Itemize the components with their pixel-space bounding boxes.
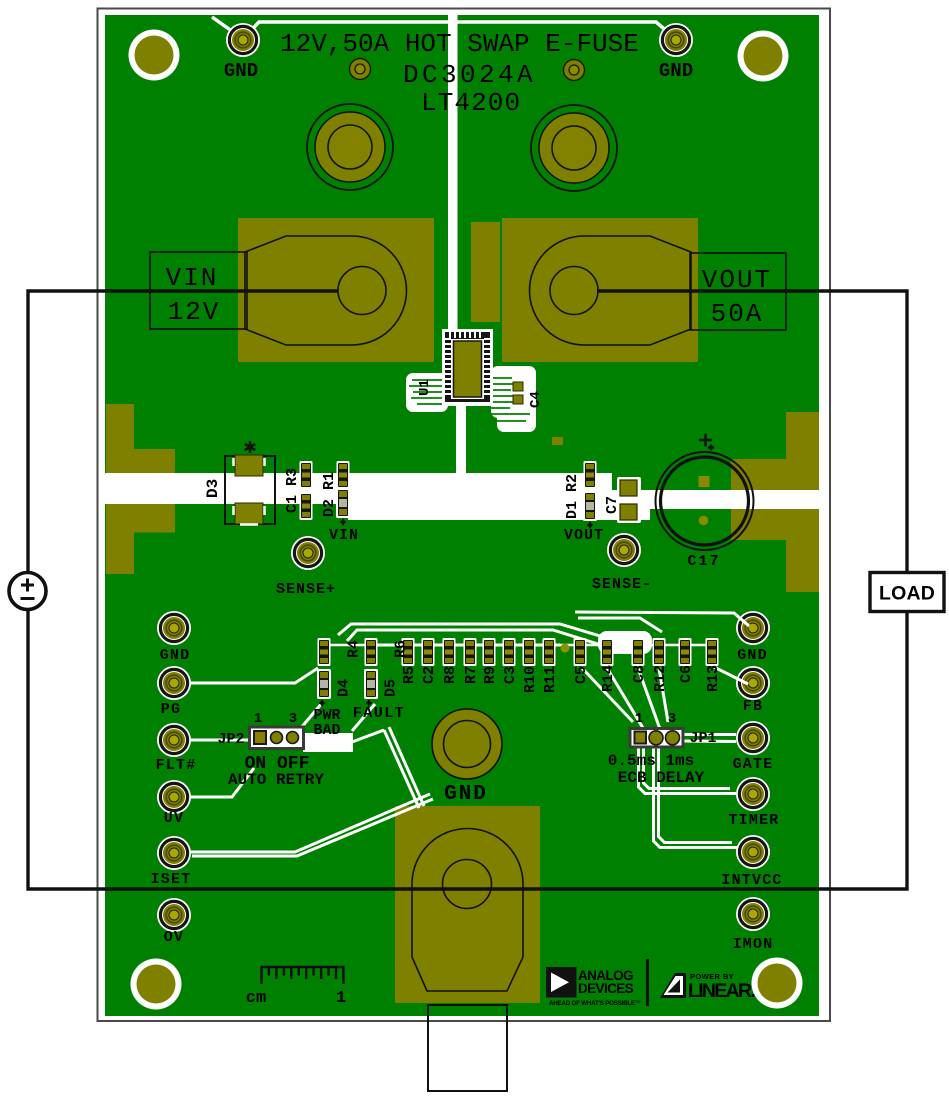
svg-text:IMON: IMON <box>733 936 774 953</box>
svg-text:C2: C2 <box>421 666 438 684</box>
svg-text:LINEAR.: LINEAR. <box>688 980 755 1002</box>
svg-text:GND: GND <box>659 60 693 82</box>
svg-text:R9: R9 <box>482 666 499 684</box>
svg-text:R4: R4 <box>346 640 363 658</box>
svg-text:12V: 12V <box>168 297 221 327</box>
svg-text:JP1: JP1 <box>689 730 716 747</box>
svg-text:U1: U1 <box>417 379 433 396</box>
svg-text:GND: GND <box>444 783 488 806</box>
svg-text:3: 3 <box>289 711 297 727</box>
svg-text:VOUT: VOUT <box>564 527 604 544</box>
svg-text:D4: D4 <box>336 679 353 697</box>
svg-text:GND: GND <box>160 647 191 664</box>
svg-text:C4: C4 <box>528 391 544 408</box>
svg-text:50A: 50A <box>711 299 764 329</box>
svg-text:GND: GND <box>737 647 768 664</box>
svg-text:R11: R11 <box>542 666 559 693</box>
svg-text:UV: UV <box>164 810 184 827</box>
svg-text:cm: cm <box>246 989 266 1008</box>
svg-text:SENSE-: SENSE- <box>592 576 652 593</box>
svg-text:VIN: VIN <box>166 263 219 293</box>
svg-text:VIN: VIN <box>329 527 359 544</box>
svg-text:LOAD: LOAD <box>879 583 935 605</box>
svg-text:LT4200: LT4200 <box>421 88 521 118</box>
svg-text:TIMER: TIMER <box>728 812 779 829</box>
svg-text:R8: R8 <box>442 666 459 684</box>
svg-text:ISET: ISET <box>151 871 192 888</box>
svg-text:C6: C6 <box>678 665 695 683</box>
svg-text:GND: GND <box>224 60 258 82</box>
svg-text:1: 1 <box>336 989 346 1008</box>
svg-text:R5: R5 <box>401 666 418 684</box>
svg-text:C17: C17 <box>687 553 720 570</box>
svg-text:R14: R14 <box>600 665 617 692</box>
svg-text:JP2: JP2 <box>217 731 244 748</box>
svg-text:D1 R2: D1 R2 <box>564 474 581 519</box>
svg-text:1: 1 <box>635 711 643 727</box>
svg-text:BAD: BAD <box>313 722 340 739</box>
svg-text:SENSE+: SENSE+ <box>276 581 336 598</box>
svg-text:R10: R10 <box>522 666 539 693</box>
svg-text:1: 1 <box>254 711 262 727</box>
svg-text:FB: FB <box>743 698 763 715</box>
svg-text:GATE: GATE <box>733 756 774 773</box>
svg-text:INTVCC: INTVCC <box>721 872 782 889</box>
svg-text:D2 R1: D2 R1 <box>321 472 338 517</box>
svg-text:R6: R6 <box>393 640 410 658</box>
svg-text:C3: C3 <box>502 666 519 684</box>
svg-text:OV: OV <box>164 929 184 946</box>
svg-text:R13: R13 <box>705 665 722 692</box>
svg-text:12V,50A HOT SWAP E-FUSE: 12V,50A HOT SWAP E-FUSE <box>280 29 639 59</box>
svg-text:R12: R12 <box>652 665 669 692</box>
svg-text:D3: D3 <box>204 479 222 498</box>
svg-text:C5: C5 <box>573 666 590 684</box>
svg-text:ECB DELAY: ECB DELAY <box>618 769 705 787</box>
svg-text:DC3024A: DC3024A <box>403 60 536 90</box>
svg-text:C7: C7 <box>604 496 621 514</box>
svg-text:FLT#: FLT# <box>156 757 197 774</box>
svg-text:DEVICES: DEVICES <box>578 981 634 996</box>
svg-text:0.5ms 1ms: 0.5ms 1ms <box>608 752 694 770</box>
svg-text:C8: C8 <box>631 665 648 683</box>
svg-text:C1 R3: C1 R3 <box>284 468 301 513</box>
svg-text:AHEAD OF WHAT'S POSSIBLE™: AHEAD OF WHAT'S POSSIBLE™ <box>549 1000 641 1007</box>
svg-text:R7: R7 <box>463 666 480 684</box>
svg-text:PG: PG <box>161 701 181 718</box>
svg-text:AUTO RETRY: AUTO RETRY <box>228 771 324 789</box>
svg-text:3: 3 <box>668 711 676 727</box>
svg-text:FAULT: FAULT <box>353 705 406 722</box>
svg-text:D5: D5 <box>383 679 400 697</box>
